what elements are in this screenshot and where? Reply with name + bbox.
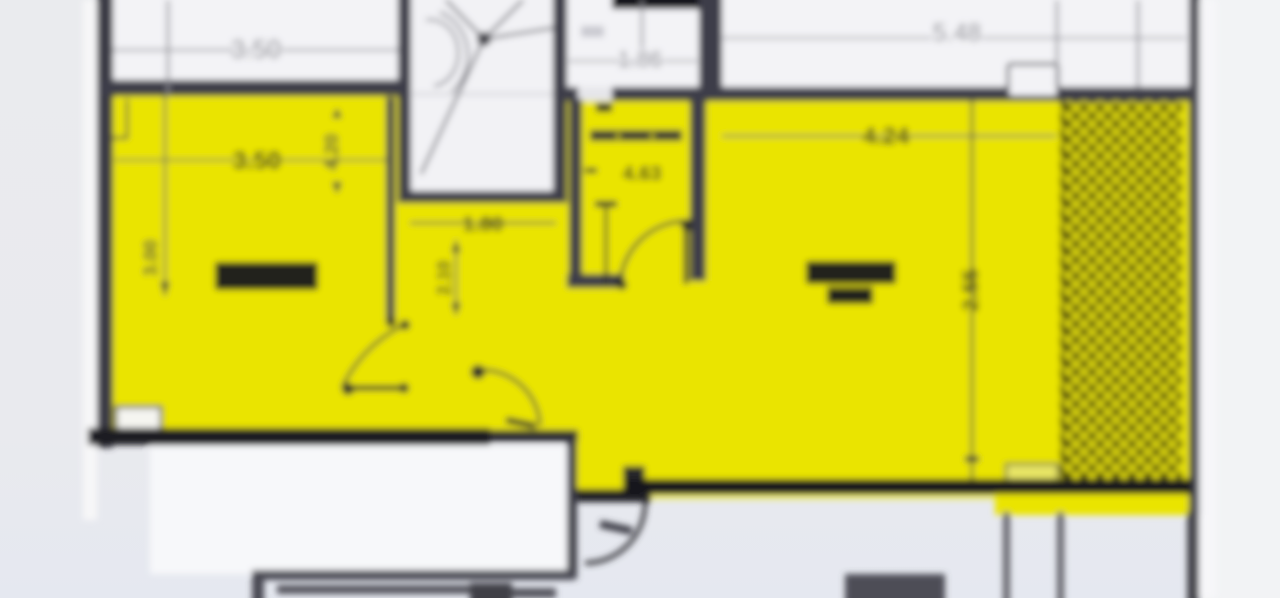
svg-text:4.20: 4.20 bbox=[322, 134, 343, 171]
svg-text:5.48: 5.48 bbox=[933, 19, 982, 47]
svg-text:2.55: 2.55 bbox=[958, 269, 983, 312]
svg-text:3.00: 3.00 bbox=[141, 240, 162, 277]
svg-text:4.24: 4.24 bbox=[863, 123, 910, 150]
svg-text:2.10: 2.10 bbox=[434, 260, 454, 295]
svg-text:1.80: 1.80 bbox=[463, 213, 504, 236]
svg-text:3.50: 3.50 bbox=[231, 34, 282, 64]
svg-text:3.50: 3.50 bbox=[233, 147, 282, 175]
svg-text:1.86: 1.86 bbox=[618, 46, 663, 72]
svg-text:4.63: 4.63 bbox=[623, 163, 662, 185]
